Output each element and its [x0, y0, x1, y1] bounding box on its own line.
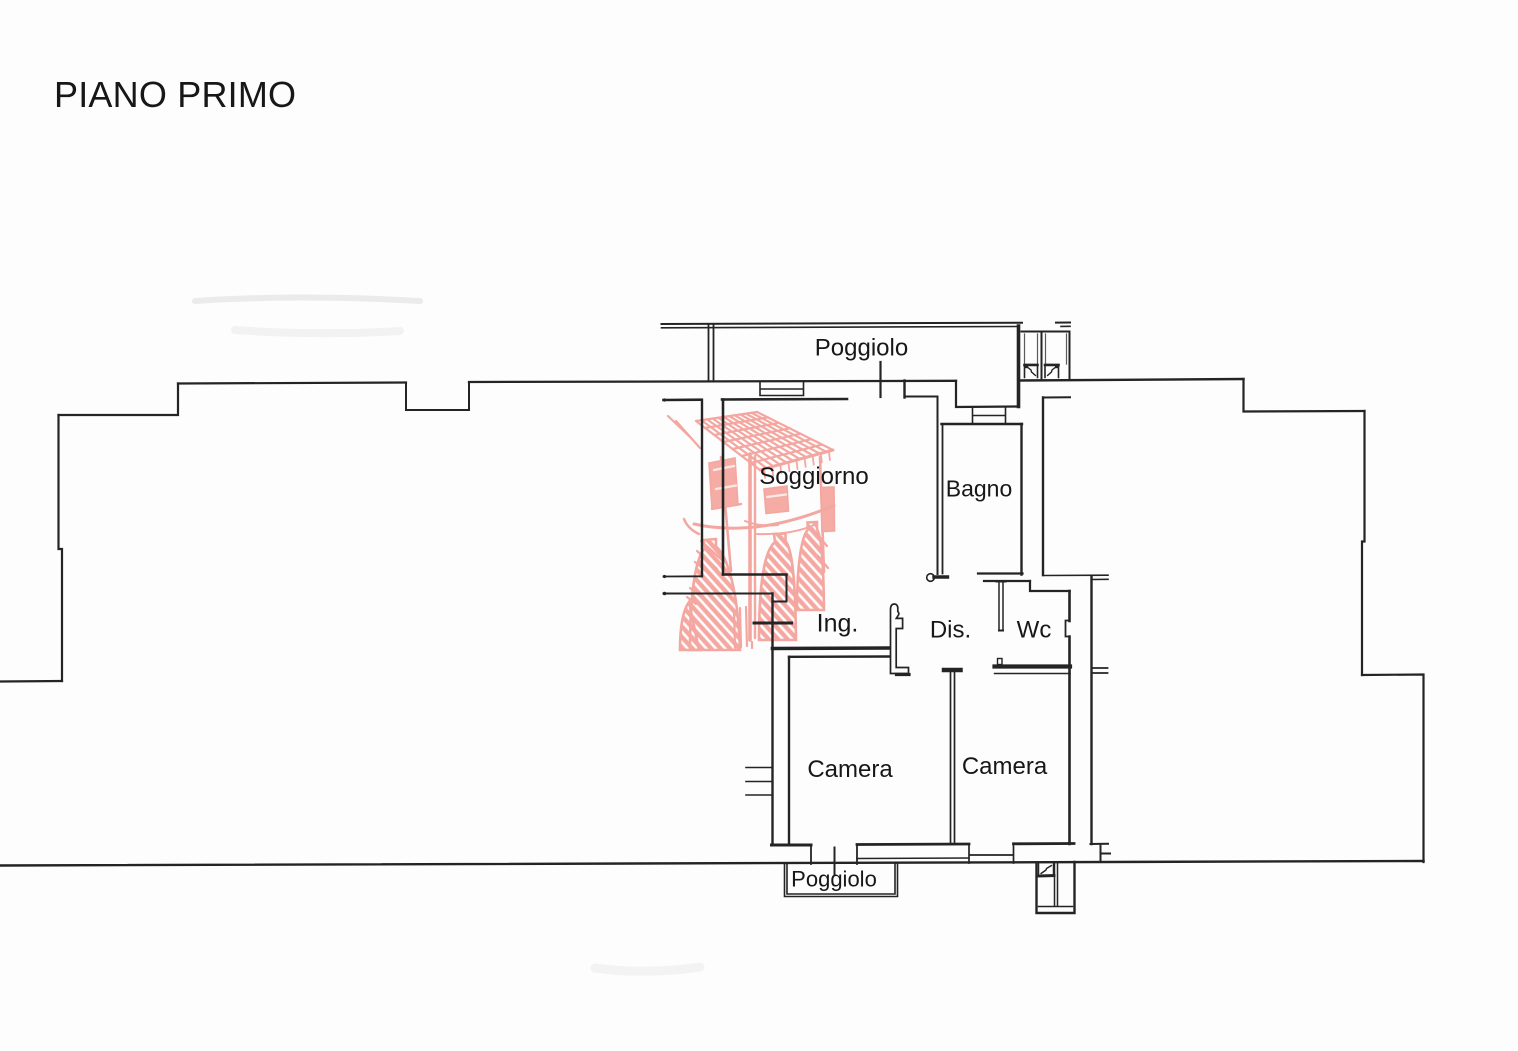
svg-text:Poggiolo: Poggiolo [815, 335, 908, 362]
svg-text:Soggiorno: Soggiorno [759, 463, 868, 490]
svg-text:Wc: Wc [1017, 617, 1052, 644]
svg-text:Camera: Camera [962, 753, 1048, 780]
svg-text:Bagno: Bagno [946, 476, 1013, 502]
svg-text:Dis.: Dis. [930, 617, 971, 644]
svg-text:Camera: Camera [807, 756, 893, 783]
svg-text:Poggiolo: Poggiolo [791, 867, 877, 892]
svg-text:PIANO PRIMO: PIANO PRIMO [54, 74, 296, 115]
svg-text:Ing.: Ing. [817, 610, 859, 638]
